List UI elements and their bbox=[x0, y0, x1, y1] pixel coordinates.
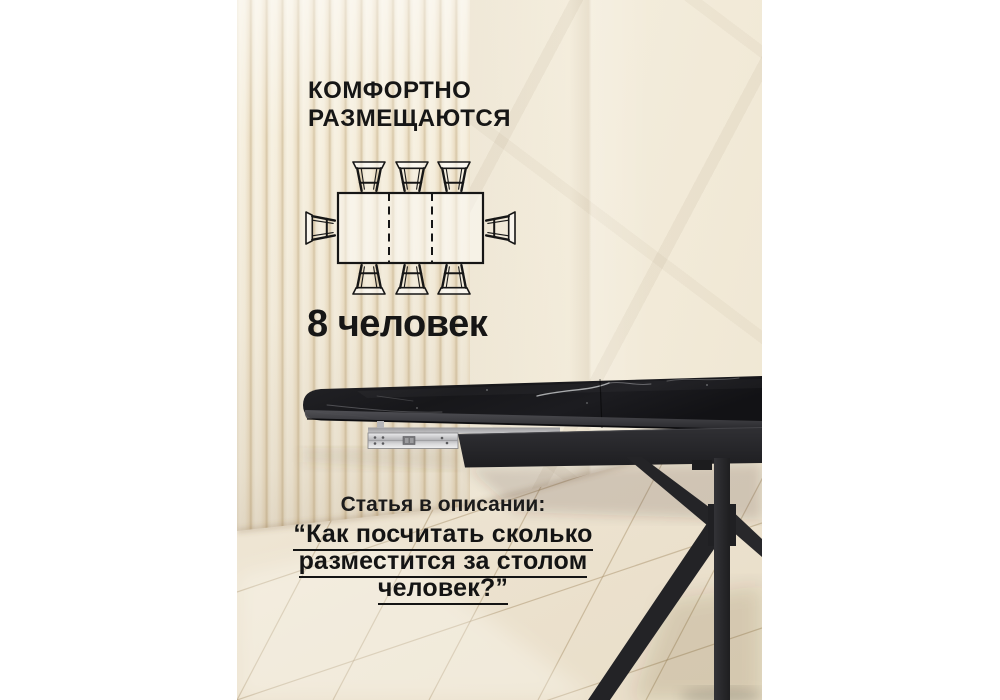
page-canvas: КОМФОРТНО РАЗМЕЩАЮТСЯ bbox=[0, 0, 1000, 700]
heading-line-1: КОМФОРТНО bbox=[308, 77, 511, 105]
chair-icon bbox=[396, 265, 428, 294]
tabletop bbox=[303, 376, 762, 431]
leg-post bbox=[714, 458, 730, 700]
heading-line-2: РАЗМЕЩАЮТСЯ bbox=[308, 105, 511, 133]
chair-icon bbox=[438, 162, 470, 191]
table-seating-diagram bbox=[302, 158, 520, 300]
table-outline bbox=[338, 193, 483, 263]
quote-line: “Как посчитать сколько bbox=[237, 521, 649, 548]
poster-heading: КОМФОРТНО РАЗМЕЩАЮТСЯ bbox=[308, 77, 511, 133]
quote-line: человек?” bbox=[237, 575, 649, 602]
product-poster: КОМФОРТНО РАЗМЕЩАЮТСЯ bbox=[237, 0, 762, 700]
capacity-text: 8 человек bbox=[307, 302, 487, 346]
chairs-top bbox=[353, 162, 470, 191]
note-label: Статья в описании: bbox=[237, 492, 649, 518]
quote-block: “Как посчитать сколько разместится за ст… bbox=[237, 521, 649, 602]
chair-icon bbox=[353, 162, 385, 191]
chair-icon bbox=[353, 265, 385, 294]
quote-line: разместится за столом bbox=[237, 548, 649, 575]
chair-icon bbox=[438, 265, 470, 294]
chairs-bottom bbox=[353, 265, 470, 294]
chair-icon bbox=[306, 212, 335, 244]
chair-icon bbox=[486, 212, 515, 244]
chair-icon bbox=[396, 162, 428, 191]
